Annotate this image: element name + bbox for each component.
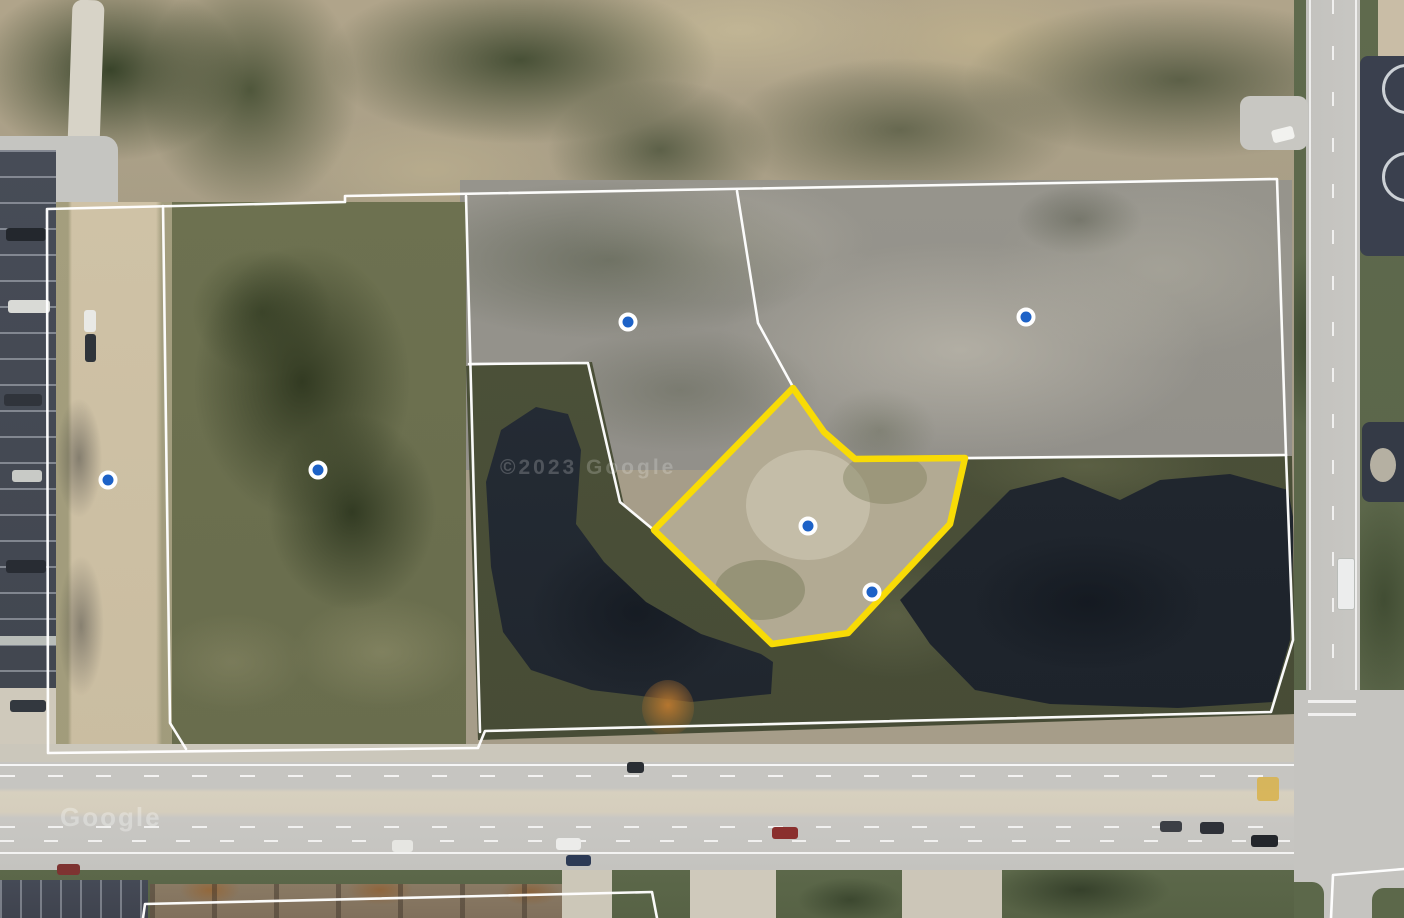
highlight-group <box>654 388 965 644</box>
marker-northeast-parcel[interactable] <box>1019 310 1034 325</box>
southeast-parcel-outline <box>1331 869 1404 918</box>
aerial-map: ©2023 Google Google <box>0 0 1404 918</box>
south-parcel-outline <box>143 892 657 918</box>
marker-highlight-south[interactable] <box>865 585 880 600</box>
west-parcel-divider <box>466 196 480 732</box>
marker-highlight-center[interactable] <box>801 519 816 534</box>
west-strip-divider <box>163 206 186 749</box>
lake-west-divider <box>469 363 655 531</box>
marker-north-central-parcel[interactable] <box>621 315 636 330</box>
map-overlay <box>0 0 1404 918</box>
parcel-texture <box>715 560 805 620</box>
map-attribution-center: ©2023 Google <box>500 456 676 480</box>
marker-west-parcel[interactable] <box>311 463 326 478</box>
map-attribution-road: Google <box>60 802 162 833</box>
northeast-divider <box>737 191 793 387</box>
marker-driveway-west[interactable] <box>101 473 116 488</box>
lake-east-divider <box>966 455 1286 458</box>
